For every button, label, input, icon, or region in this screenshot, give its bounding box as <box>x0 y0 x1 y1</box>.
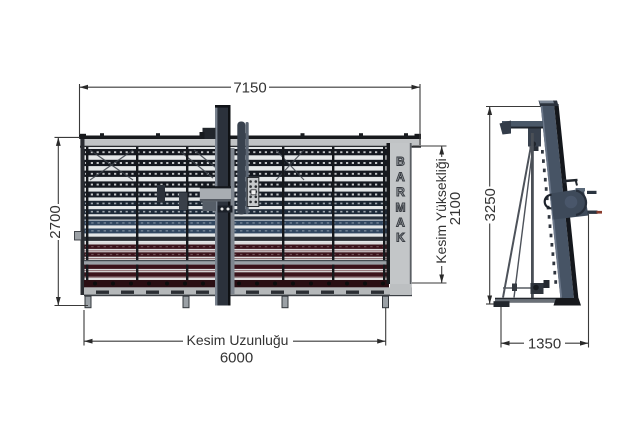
svg-text:R: R <box>396 185 405 199</box>
svg-text:K: K <box>396 231 405 245</box>
svg-text:Kesim Uzunluğu: Kesim Uzunluğu <box>187 332 289 348</box>
svg-text:M: M <box>396 200 406 214</box>
svg-text:A: A <box>396 170 405 184</box>
svg-text:7150: 7150 <box>233 79 266 96</box>
svg-text:2100: 2100 <box>447 192 464 225</box>
svg-text:1350: 1350 <box>528 335 561 352</box>
svg-text:A: A <box>396 216 405 230</box>
svg-text:6000: 6000 <box>220 350 253 367</box>
svg-text:B: B <box>396 155 405 169</box>
svg-text:3250: 3250 <box>482 188 499 221</box>
svg-text:2700: 2700 <box>47 205 64 238</box>
